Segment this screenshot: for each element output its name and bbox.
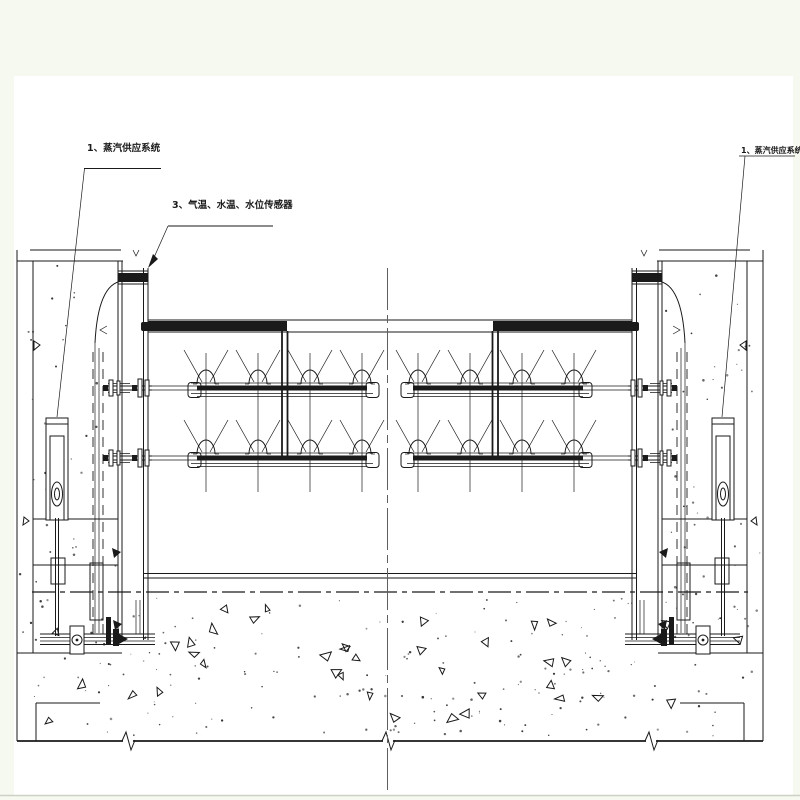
paper-margins: [0, 0, 800, 800]
steam-hoist-cylinder: [46, 418, 68, 636]
concrete-hatch: [19, 265, 760, 736]
bottom-drain-pipe: [40, 617, 155, 654]
label-sensors: 3、气温、水温、水位传感器: [172, 199, 293, 211]
engineering-drawing: 1、蒸汽供应系统 3、气温、水温、水位传感器 1、蒸汽供应系统: [0, 0, 800, 800]
spray-header-lower: [152, 453, 379, 468]
concrete-pier: [17, 250, 139, 741]
weld-marks: [23, 326, 122, 630]
wall-flange-coupling-upper: [103, 379, 152, 397]
label-steam-supply-left: 1、蒸汽供应系统: [87, 142, 161, 154]
spray-header-upper: [152, 383, 379, 398]
spray-nozzles: [184, 350, 384, 492]
leader-line: [57, 169, 85, 418]
left-half: [17, 250, 390, 741]
drawing-canvas: 1、蒸汽供应系统 3、气温、水温、水位传感器 1、蒸汽供应系统: [0, 0, 800, 800]
right-half-mirror: [390, 250, 763, 741]
foundation: [17, 592, 763, 750]
leader-line: [722, 156, 745, 417]
wall-flange-coupling-lower: [103, 449, 152, 467]
leader-arrowhead: [148, 254, 158, 268]
label-steam-supply-right: 1、蒸汽供应系统: [741, 145, 800, 155]
steam-header-pipe: [148, 321, 287, 331]
annotations: 1、蒸汽供应系统 3、气温、水温、水位传感器 1、蒸汽供应系统: [57, 142, 800, 417]
